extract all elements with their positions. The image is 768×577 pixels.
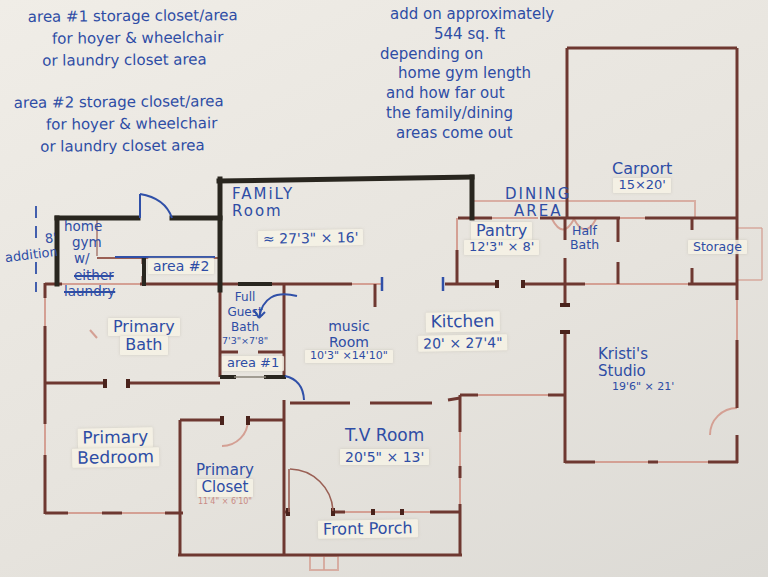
music-room-label: music Room 10'3" ×14'10" — [305, 318, 393, 363]
storage-label: Storage — [688, 240, 747, 254]
primary-bath-label: Primary Bath — [108, 318, 180, 355]
dining-area-label: DINING AREA — [505, 186, 571, 221]
family-room-label: FAMiLY Room — [232, 186, 294, 221]
home-gym-label: home gym w/either laundry — [64, 218, 115, 299]
area2-note: area #2 storage closet/area for hoyer & … — [14, 91, 224, 158]
front-porch-label: Front Porch — [318, 519, 418, 539]
tv-room-label: T.V Room 20'5" × 13' — [340, 426, 429, 465]
area1-room-label: area #1 — [222, 356, 284, 371]
carport-label: Carport 15×20' — [612, 160, 672, 193]
primary-closet-label: Primary Closet 11'4" × 6'10" — [196, 462, 254, 506]
family-dining-dims: ≈ 27'3" × 16' — [258, 229, 364, 247]
pantry-label: Pantry 12'3" × 8' — [464, 222, 539, 255]
area2-room-label: area #2 — [148, 258, 214, 274]
primary-bedroom-label: Primary Bedroom — [72, 427, 160, 468]
addon-note: add on approximately 544 sq. ft dependin… — [372, 5, 554, 144]
floor-plan-paper: area #1 storage closet/area for hoyer & … — [0, 0, 768, 577]
half-bath-label: Half Bath — [570, 224, 599, 253]
full-guest-bath-label: Full Guest Bath 7'3"×7'8" — [222, 290, 268, 347]
kitchen-label: Kitchen 20' × 27'4" — [418, 311, 508, 351]
area1-note: area #1 storage closet/area for hoyer & … — [28, 5, 238, 72]
front-door — [289, 469, 333, 512]
kristis-studio-label: Kristi's Studio 19'6" × 21' — [598, 346, 674, 393]
